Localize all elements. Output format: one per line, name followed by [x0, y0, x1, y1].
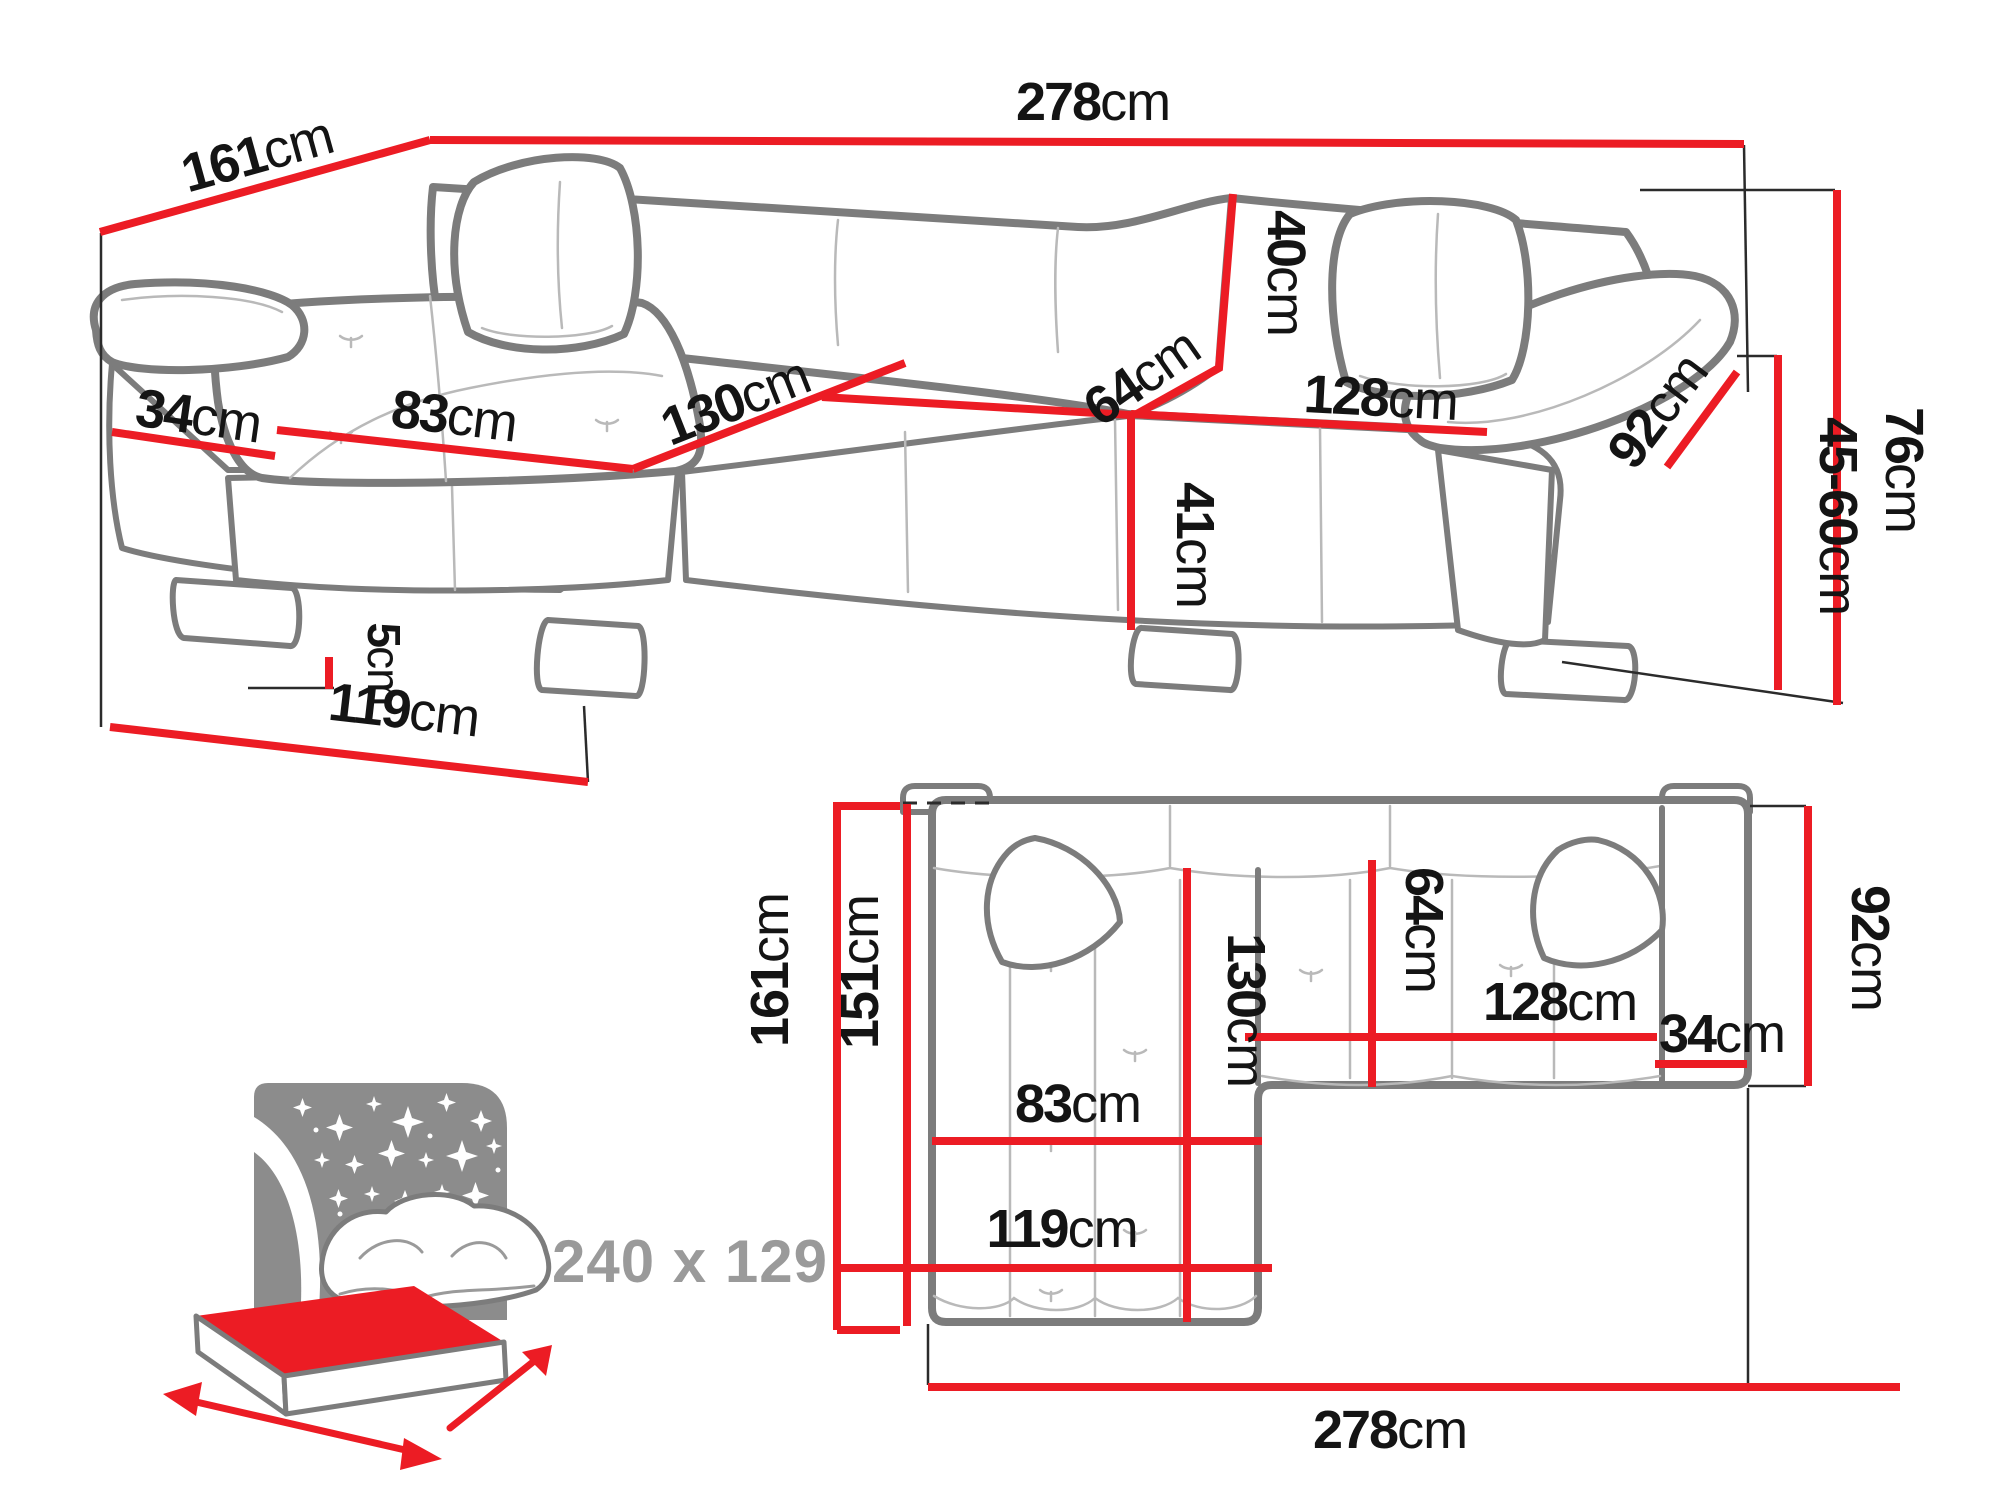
sofa-leg: [173, 580, 300, 646]
plan-dim-label-161: 161cm: [740, 893, 800, 1047]
dim-line-278: [430, 140, 1744, 144]
sofa-leg: [1131, 628, 1239, 690]
furniture-dimensions-diagram: 161cm 278cm 34cm 83cm 130cm 64cm 40cm 41…: [0, 0, 2000, 1499]
sleeping-area-label: 240 x 129: [552, 1228, 828, 1295]
dim-label-45-60: 45-60cm: [1808, 417, 1868, 615]
pillow-left: [454, 157, 638, 349]
plan-dim-label-92: 92cm: [1840, 885, 1900, 1011]
dim-label-76: 76cm: [1874, 407, 1934, 533]
sofa-3d-view: [94, 157, 1735, 700]
dim-label-41: 41cm: [1165, 482, 1225, 608]
dim-label-278: 278cm: [1016, 72, 1170, 132]
plan-dim-label-278: 278cm: [1313, 1400, 1467, 1460]
sleeping-function-icon: 240 x 129: [163, 1083, 828, 1470]
plan-dim-label-83: 83cm: [1015, 1074, 1141, 1134]
dim-line-119: [110, 727, 588, 782]
dim-label-119: 119cm: [326, 672, 483, 749]
sofa-leg: [537, 620, 645, 696]
dim-label-128: 128cm: [1302, 364, 1459, 432]
plan-dim-label-64: 64cm: [1394, 867, 1454, 993]
extension-line: [584, 706, 588, 782]
right-armrest-front: [1438, 450, 1552, 644]
diagram-canvas: 161cm 278cm 34cm 83cm 130cm 64cm 40cm 41…: [0, 0, 2000, 1499]
dim-label-40: 40cm: [1256, 210, 1316, 336]
plan-dim-label-128: 128cm: [1483, 972, 1637, 1032]
plan-dim-label-151: 151cm: [830, 895, 890, 1049]
plan-dim-line-161: [837, 802, 900, 1330]
plan-dim-label-130: 130cm: [1216, 933, 1276, 1087]
plan-dim-label-119: 119cm: [986, 1199, 1137, 1259]
plan-dim-label-34: 34cm: [1659, 1004, 1785, 1064]
